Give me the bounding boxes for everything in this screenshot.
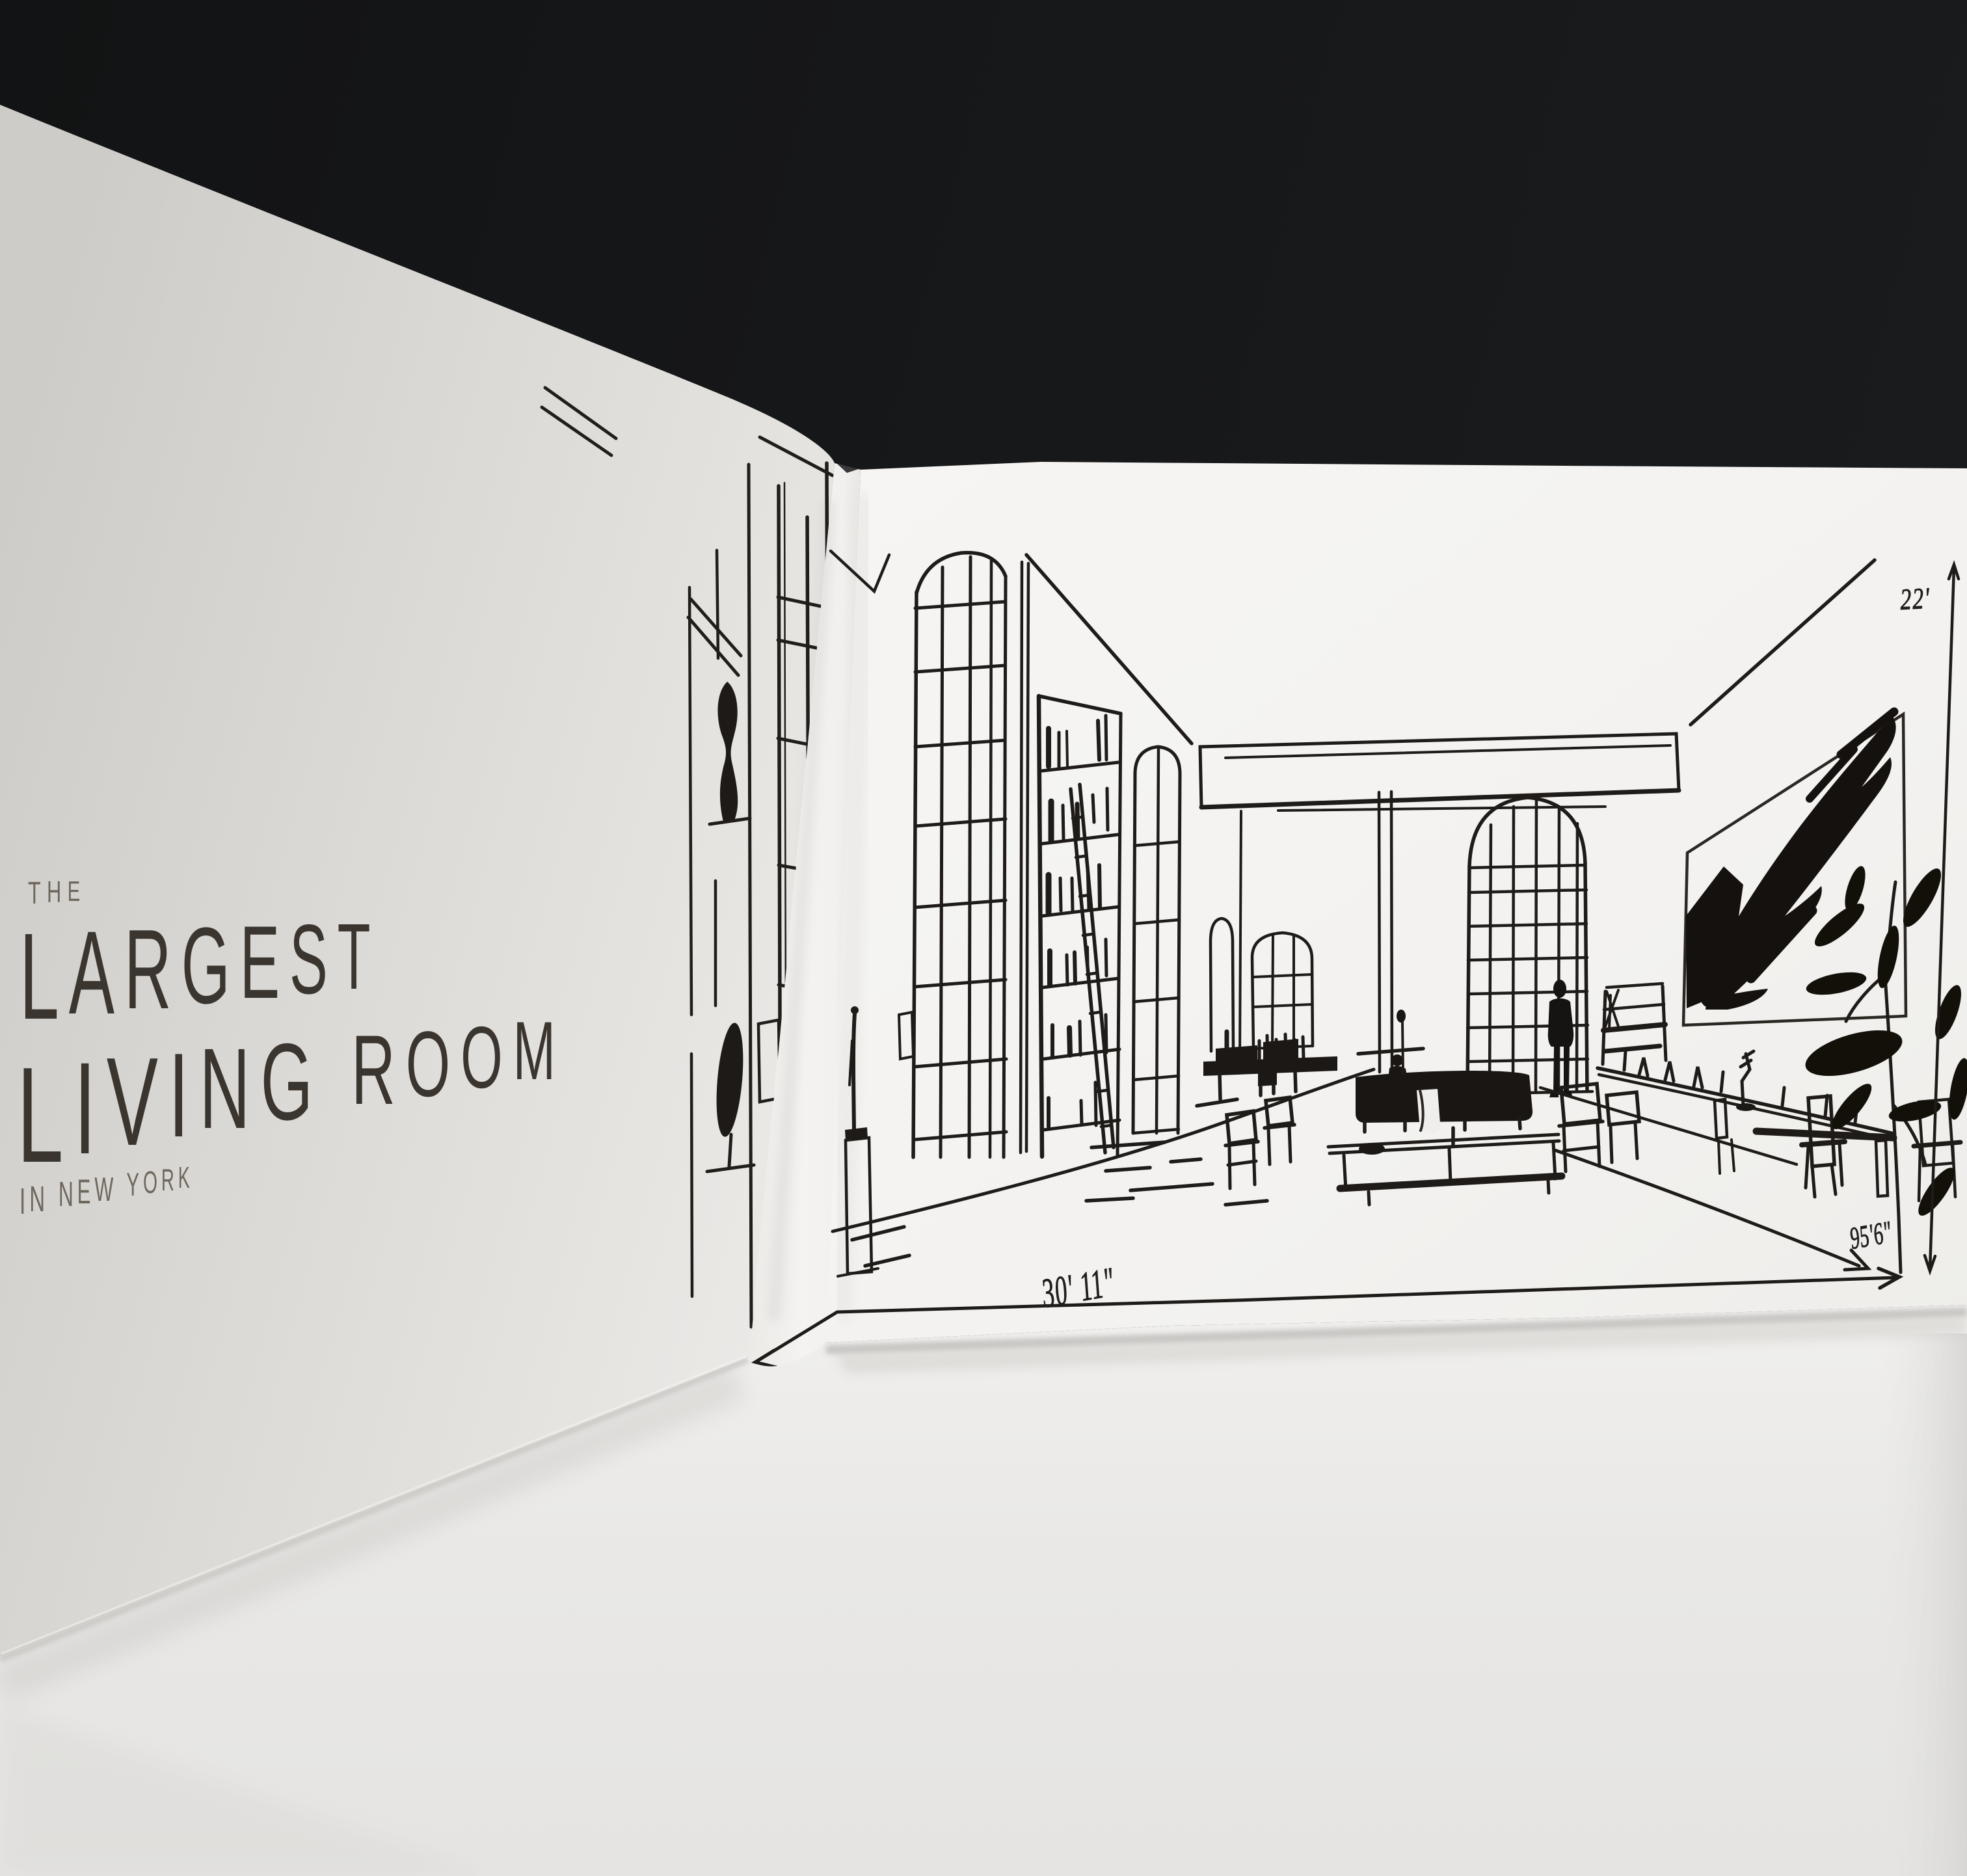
svg-text:22': 22' [1899, 582, 1931, 616]
svg-text:THE: THE [28, 875, 87, 911]
svg-text:95'6": 95'6" [1847, 1214, 1895, 1256]
